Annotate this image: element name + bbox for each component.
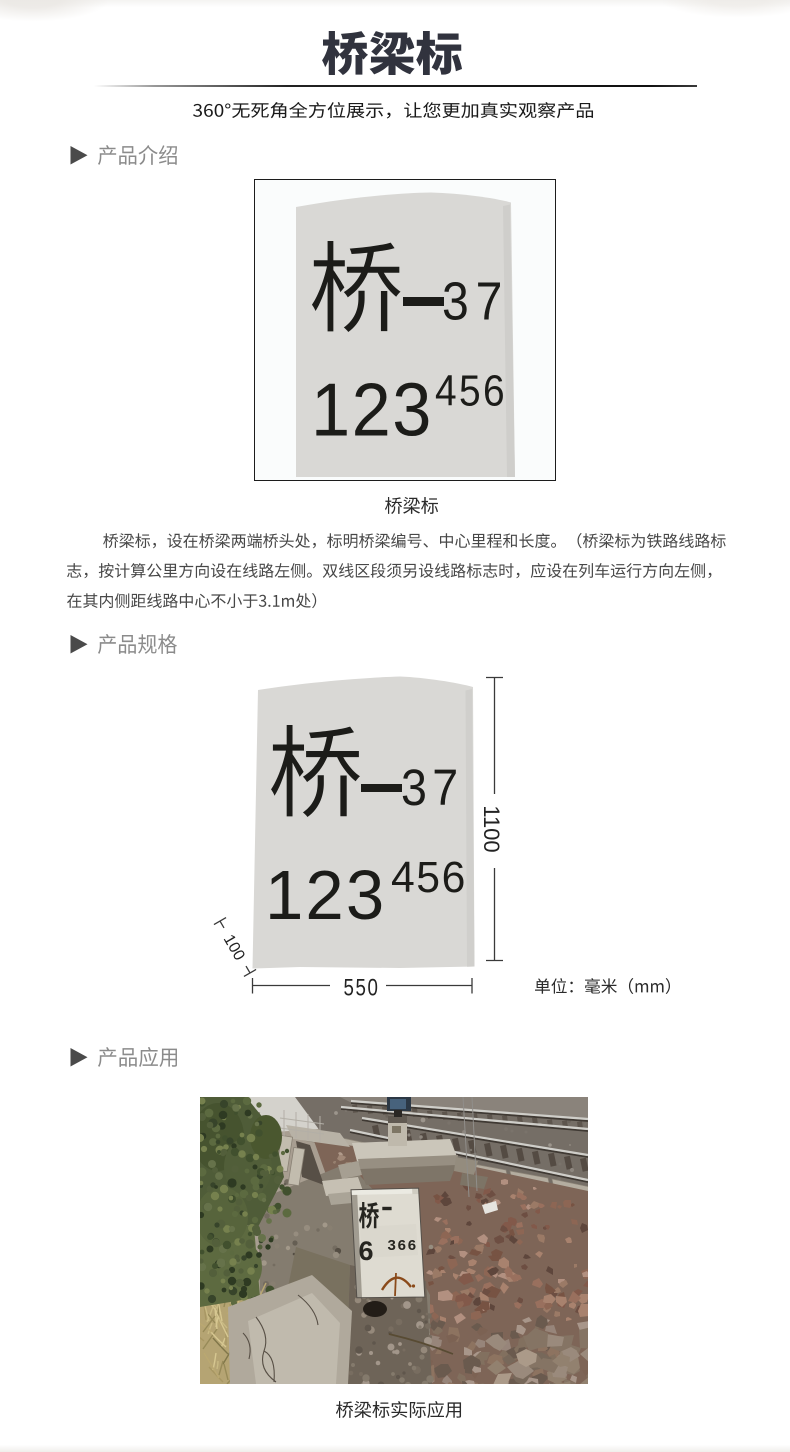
svg-text:6: 6: [359, 1236, 374, 1266]
svg-text:100: 100: [220, 932, 248, 964]
svg-text:37: 37: [401, 760, 463, 816]
svg-text:123: 123: [265, 856, 386, 935]
svg-text:37: 37: [442, 271, 509, 331]
svg-text:456: 456: [435, 367, 507, 416]
svg-text:456: 456: [391, 853, 467, 902]
svg-text:550: 550: [344, 974, 380, 1001]
svg-text:1100: 1100: [479, 805, 504, 852]
svg-text:366: 366: [388, 1237, 418, 1254]
svg-text:123: 123: [311, 368, 433, 452]
